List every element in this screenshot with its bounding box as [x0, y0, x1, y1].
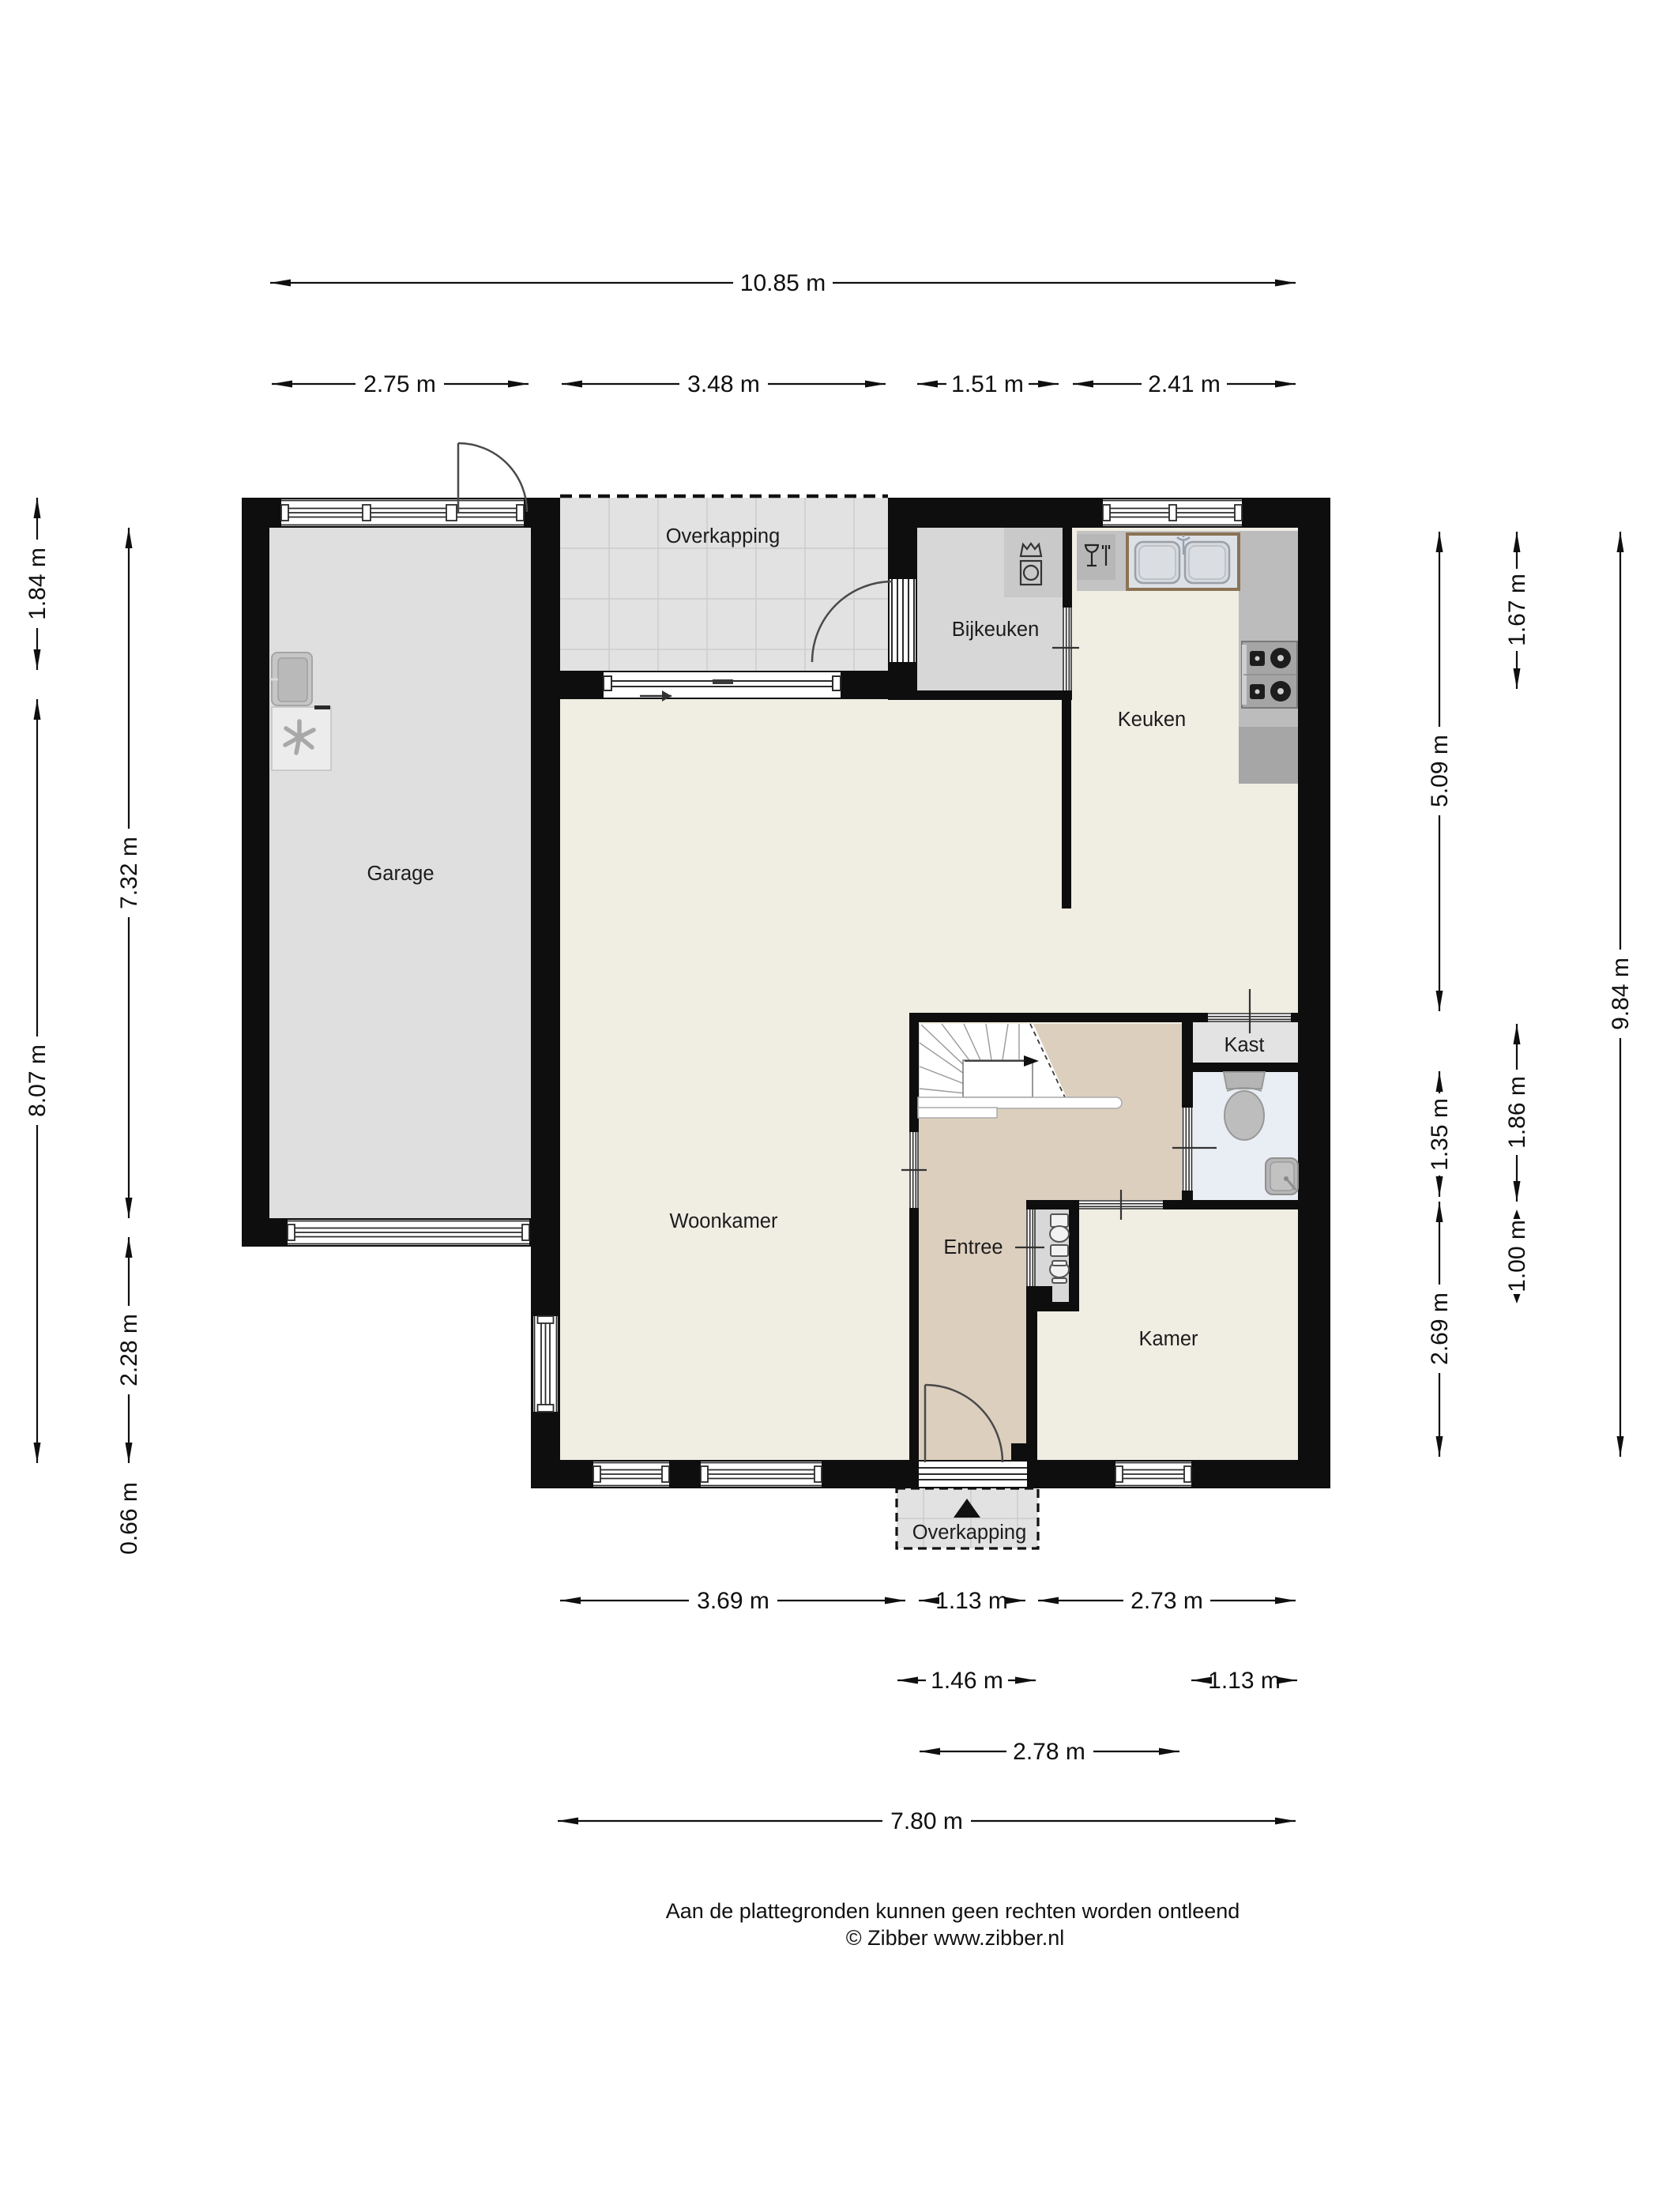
svg-text:1.13 m: 1.13 m [935, 1588, 1008, 1614]
svg-text:Bijkeuken: Bijkeuken [952, 619, 1040, 641]
svg-text:Entree: Entree [943, 1236, 1003, 1258]
svg-text:Kamer: Kamer [1138, 1328, 1198, 1350]
svg-text:0.66 m: 0.66 m [116, 1482, 142, 1555]
svg-text:3.69 m: 3.69 m [697, 1588, 769, 1614]
svg-text:2.73 m: 2.73 m [1130, 1588, 1203, 1614]
svg-text:1.13 m: 1.13 m [1208, 1668, 1281, 1694]
svg-text:9.84 m: 9.84 m [1608, 957, 1634, 1030]
svg-text:7.32 m: 7.32 m [116, 837, 142, 909]
svg-text:Kast: Kast [1224, 1034, 1264, 1056]
svg-text:2.69 m: 2.69 m [1427, 1292, 1453, 1365]
svg-text:3.48 m: 3.48 m [687, 371, 760, 397]
svg-text:1.51 m: 1.51 m [951, 371, 1024, 397]
svg-text:7.80 m: 7.80 m [890, 1808, 963, 1834]
svg-text:Aan de plattegronden kunnen ge: Aan de plattegronden kunnen geen rechten… [666, 1899, 1240, 1923]
svg-text:Keuken: Keuken [1118, 709, 1187, 731]
svg-text:8.07 m: 8.07 m [24, 1044, 51, 1117]
svg-text:1.84 m: 1.84 m [24, 547, 51, 620]
svg-text:2.75 m: 2.75 m [363, 371, 436, 397]
svg-text:Woonkamer: Woonkamer [669, 1210, 778, 1232]
svg-text:© Zibber www.zibber.nl: © Zibber www.zibber.nl [846, 1926, 1065, 1950]
svg-text:Garage: Garage [367, 863, 434, 885]
svg-text:1.00 m: 1.00 m [1504, 1220, 1530, 1292]
svg-text:1.86 m: 1.86 m [1504, 1076, 1530, 1149]
svg-text:2.41 m: 2.41 m [1148, 371, 1221, 397]
svg-text:Overkapping: Overkapping [666, 525, 781, 547]
svg-text:2.28 m: 2.28 m [116, 1314, 142, 1386]
svg-text:1.35 m: 1.35 m [1427, 1098, 1453, 1171]
svg-text:1.46 m: 1.46 m [931, 1668, 1003, 1694]
svg-text:5.09 m: 5.09 m [1427, 735, 1453, 807]
svg-text:2.78 m: 2.78 m [1013, 1739, 1085, 1765]
svg-text:10.85 m: 10.85 m [740, 270, 826, 296]
svg-text:Overkapping: Overkapping [912, 1522, 1027, 1544]
svg-text:1.67 m: 1.67 m [1504, 574, 1530, 646]
